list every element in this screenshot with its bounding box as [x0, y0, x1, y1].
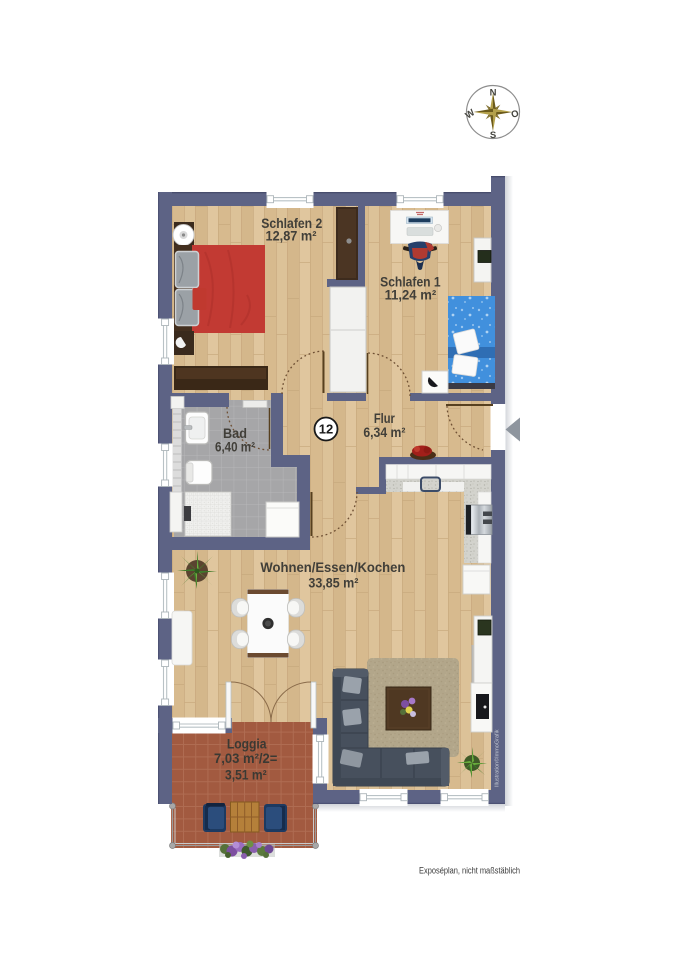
svg-text:33,85 m²: 33,85 m² — [308, 575, 358, 590]
svg-text:7,03 m²/2=: 7,03 m²/2= — [214, 751, 278, 766]
svg-text:Bad: Bad — [223, 425, 247, 441]
svg-text:Illustration©ImmoGrafik: Illustration©ImmoGrafik — [494, 729, 501, 787]
svg-text:11,24 m²: 11,24 m² — [385, 288, 437, 303]
svg-text:3,51 m²: 3,51 m² — [225, 768, 267, 783]
svg-text:6,40 m²: 6,40 m² — [215, 440, 255, 455]
svg-text:N: N — [490, 88, 497, 99]
svg-text:Flur: Flur — [374, 410, 395, 426]
svg-text:6,34 m²: 6,34 m² — [363, 425, 405, 440]
svg-text:12: 12 — [319, 422, 333, 437]
svg-text:Loggia: Loggia — [227, 735, 267, 751]
svg-text:12,87 m²: 12,87 m² — [266, 229, 317, 244]
svg-text:S: S — [490, 130, 496, 141]
svg-text:Exposéplan, nicht maßstäblich: Exposéplan, nicht maßstäblich — [419, 866, 520, 876]
svg-text:Wohnen/Essen/Kochen: Wohnen/Essen/Kochen — [260, 559, 405, 575]
